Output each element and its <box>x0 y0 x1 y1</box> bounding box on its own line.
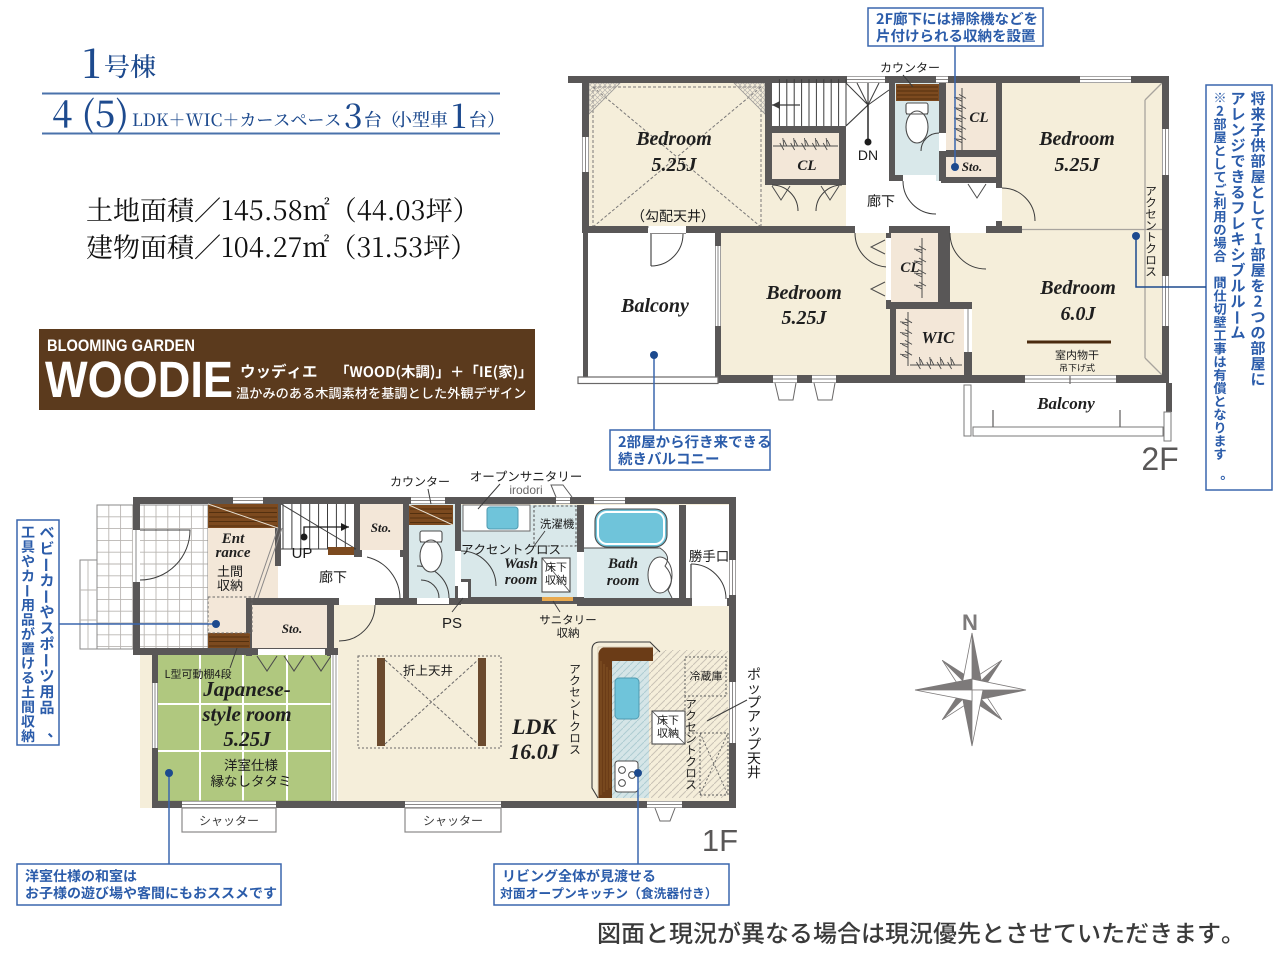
svg-text:Sto.: Sto. <box>282 621 303 636</box>
svg-text:6.0J: 6.0J <box>1061 303 1097 325</box>
svg-text:Sto.: Sto. <box>962 159 983 174</box>
svg-text:rance: rance <box>216 545 251 561</box>
svg-text:Japanese-: Japanese- <box>202 677 291 701</box>
svg-text:5.25J: 5.25J <box>223 727 272 751</box>
svg-text:room: room <box>505 572 538 588</box>
svg-text:Wash: Wash <box>504 556 538 572</box>
svg-text:Bedroom: Bedroom <box>1039 277 1116 299</box>
svg-text:1F: 1F <box>702 823 738 858</box>
svg-text:Balcony: Balcony <box>1036 394 1095 413</box>
svg-text:Bedroom: Bedroom <box>1038 128 1115 150</box>
svg-text:CL: CL <box>969 110 988 126</box>
svg-text:DN: DN <box>858 147 878 163</box>
svg-text:5.25J: 5.25J <box>782 307 828 329</box>
svg-text:irodori: irodori <box>509 483 542 497</box>
svg-text:5.25J: 5.25J <box>652 154 698 176</box>
svg-text:UP: UP <box>292 545 313 562</box>
svg-text:16.0J: 16.0J <box>509 739 560 764</box>
svg-text:WOODIE: WOODIE <box>45 351 233 408</box>
svg-text:CL: CL <box>797 158 816 174</box>
svg-text:style room: style room <box>201 702 291 726</box>
svg-text:WIC: WIC <box>921 328 955 347</box>
svg-text:CL: CL <box>900 260 919 276</box>
svg-text:Sto.: Sto. <box>371 520 392 535</box>
svg-text:PS: PS <box>442 615 462 632</box>
svg-text:N: N <box>962 610 978 635</box>
svg-text:5.25J: 5.25J <box>1055 154 1101 176</box>
svg-text:Bath: Bath <box>607 556 638 572</box>
svg-text:room: room <box>607 573 640 589</box>
svg-text:Bedroom: Bedroom <box>635 128 712 150</box>
svg-text:2F: 2F <box>1141 441 1178 477</box>
svg-text:Bedroom: Bedroom <box>765 282 842 304</box>
svg-text:Balcony: Balcony <box>620 295 689 317</box>
svg-text:LDK: LDK <box>511 714 557 739</box>
